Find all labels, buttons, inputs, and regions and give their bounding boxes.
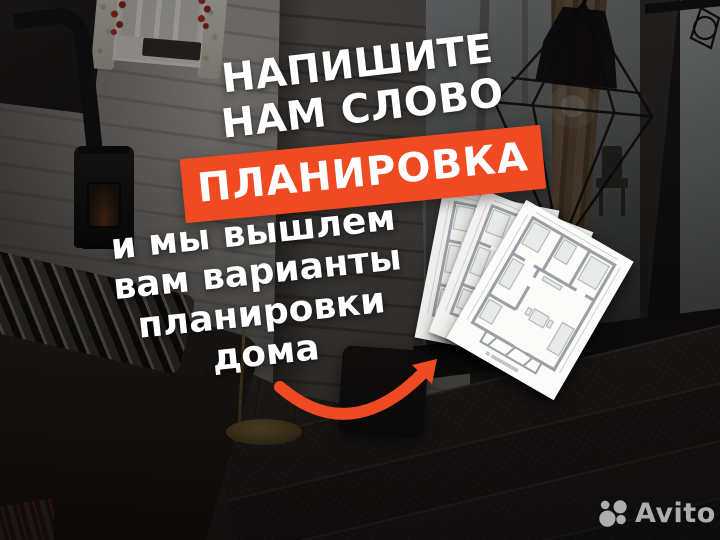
ad-image: НАПИШИТЕ НАМ СЛОВО ПЛАНИРОВКА и мы вышле…	[0, 0, 720, 540]
avito-logo-icon	[598, 497, 630, 529]
avito-wordmark: Avito	[635, 498, 716, 529]
avito-watermark: Avito	[598, 497, 716, 529]
